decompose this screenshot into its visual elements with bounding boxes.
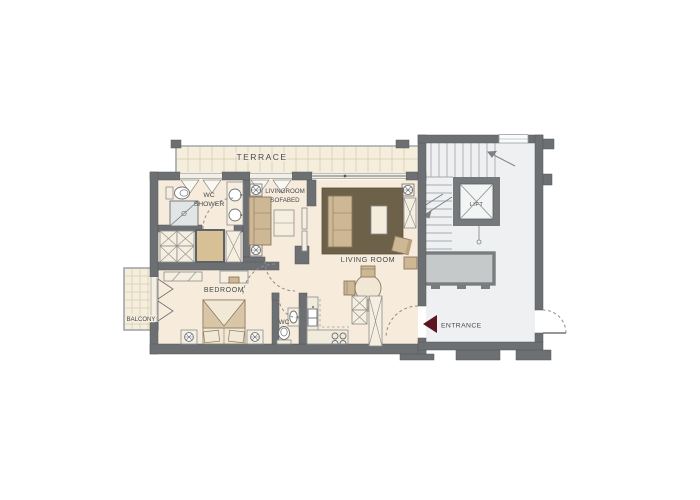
terrace-post-right [396,140,409,148]
sink-icon [229,189,241,201]
side-table [404,257,417,269]
service-shaft [196,230,224,262]
stairwell-floor [426,143,535,342]
label-entrance: ENTRANCE [441,323,482,330]
pillow [204,330,220,343]
closet-row [160,230,241,262]
toilet-icon [175,187,190,199]
pillow [228,330,244,343]
label-sofabed-1: LIVINGROOM [265,188,305,195]
label-wc-shower-1: WC [203,192,214,199]
label-terrace: TERRACE [236,152,287,162]
label-living-room: LIVING ROOM [341,255,396,264]
label-wc: WC [279,319,290,326]
floorplan-canvas: TERRACE WC SHOWER LIVINGROOM SOFABED LIV… [0,0,700,500]
toilet-cistern [166,187,173,199]
sofa [328,196,352,247]
facade-fin-mid [543,174,552,185]
facade-fin-top [543,139,554,149]
door-arc-building [543,310,566,333]
toilet-cistern [277,340,291,344]
floorplan-page: TERRACE WC SHOWER LIVINGROOM SOFABED LIV… [0,0,700,500]
label-sofabed-2: SOFABED [270,197,300,204]
kitchen-counter [307,330,348,344]
lobby-console [424,253,494,289]
label-lift: LIFT [470,202,484,208]
toilet-icon [279,327,290,340]
label-balcony: BALCONY [127,317,156,323]
coffee-table [371,206,387,234]
washbasin-icon [290,311,298,323]
terrace-slider-living-room [312,173,406,179]
sink-icon [229,209,241,221]
label-wc-shower-2: SHOWER [194,201,225,208]
stairwell-window [499,135,528,144]
sofa-bed [249,197,271,245]
building-entrance-door [543,310,566,333]
shelf [302,231,307,251]
terrace-post-left [171,140,181,148]
chair [361,266,375,277]
kitchen-sink-icon [308,309,317,318]
radiator [164,272,202,281]
shelf [302,208,307,229]
chair [344,281,355,295]
label-bedroom: BEDROOM [204,287,244,294]
